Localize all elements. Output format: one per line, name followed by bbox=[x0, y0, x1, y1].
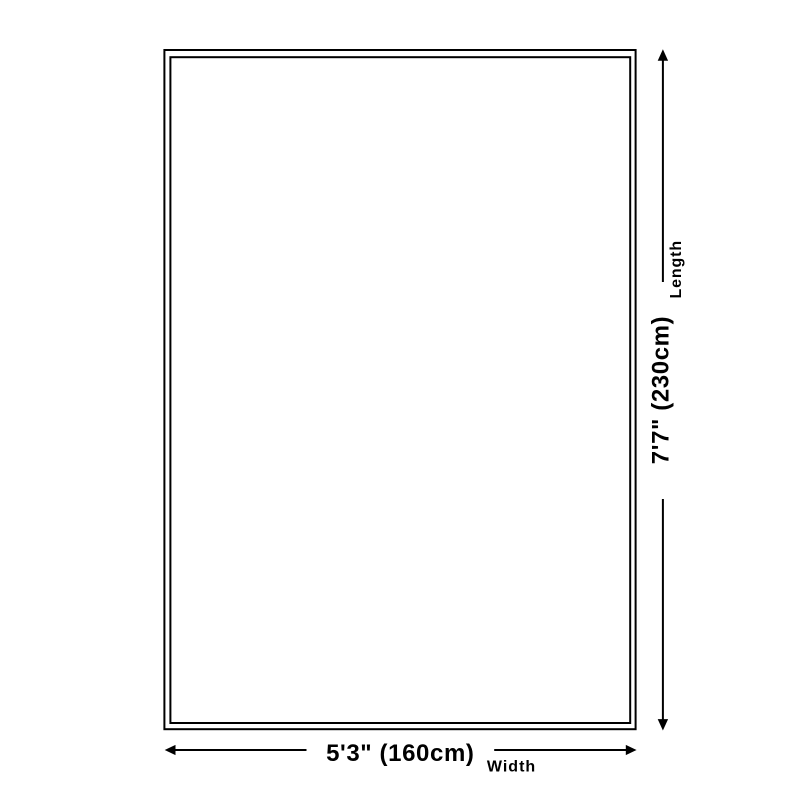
svg-text:7'7" (230cm): 7'7" (230cm) bbox=[647, 316, 674, 464]
svg-text:5'3" (160cm): 5'3" (160cm) bbox=[326, 740, 474, 767]
svg-text:Length: Length bbox=[668, 240, 685, 298]
svg-text:Width: Width bbox=[487, 759, 536, 776]
